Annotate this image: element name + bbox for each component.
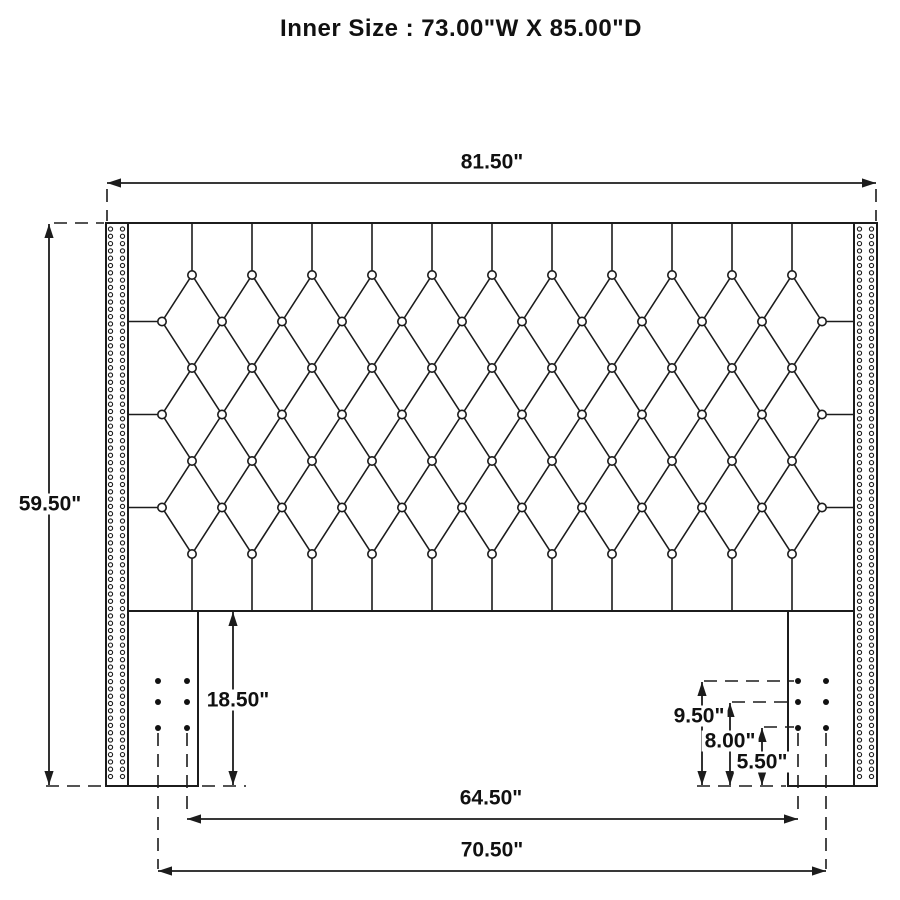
headboard-dimension-diagram: Inner Size : 73.00"W X 85.00"D 81.50" 59… [0,0,900,900]
overall-height-label: 59.50" [16,494,85,515]
overall-width-dim [107,178,876,187]
bolt-550-label: 5.50" [734,752,791,773]
inner-size-title: Inner Size : 73.00"W X 85.00"D [277,17,645,41]
bolt-800-label: 8.00" [702,731,759,752]
outer-bolt-span-dim [158,866,826,875]
bolt-950-label: 9.50" [671,706,728,727]
outer-bolt-span-label: 70.50" [458,840,527,861]
tufting-buttons [158,271,826,558]
leg-height-label: 18.50" [204,690,273,711]
overall-width-label: 81.50" [458,152,527,173]
inner-bolt-span-dim [187,814,798,823]
inner-bolt-span-label: 64.50" [457,788,526,809]
